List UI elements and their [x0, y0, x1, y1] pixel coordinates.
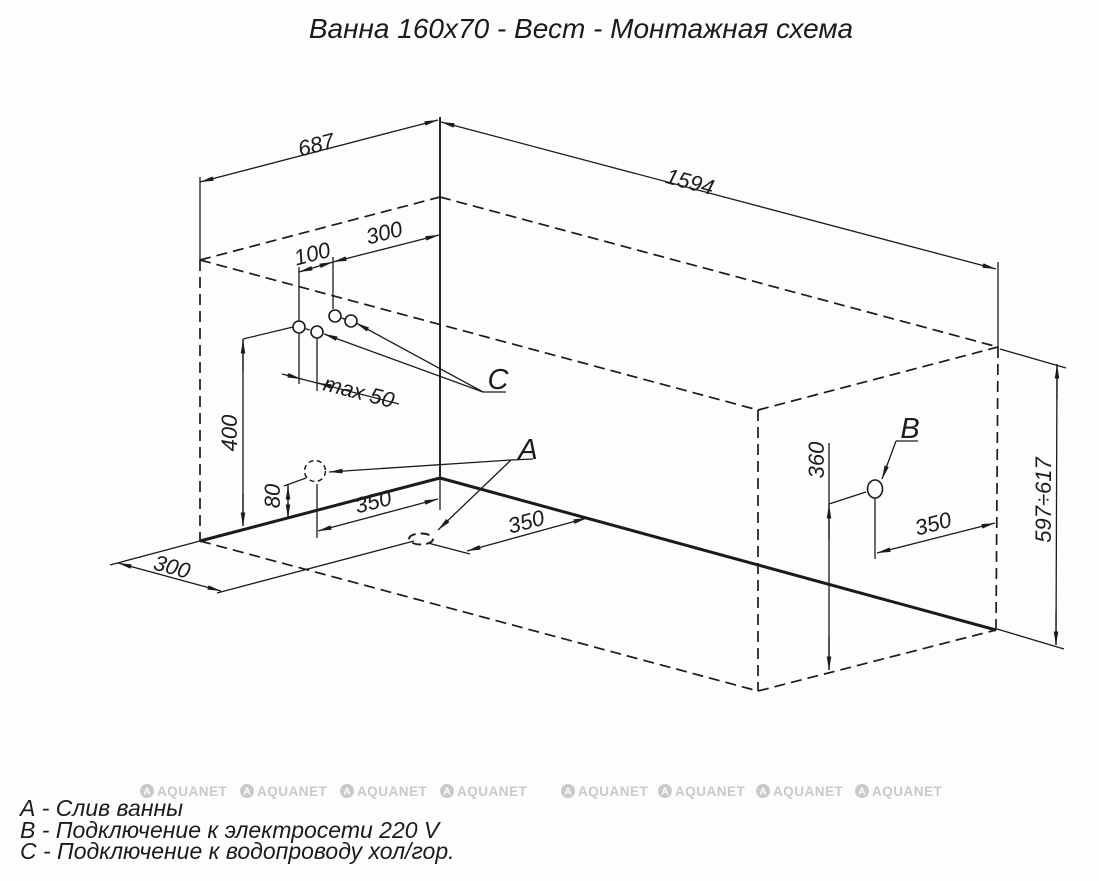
dim-floor-drain-length-300: 300 — [118, 550, 221, 591]
aquanet-logo-icon: A — [661, 787, 668, 798]
aquanet-logo-icon: A — [858, 787, 865, 798]
installation-diagram: AAQUANET AAQUANET AAQUANET AAQUANET AAQU… — [0, 0, 1099, 881]
water-hole — [329, 310, 341, 322]
dim-b-height-360: 360 — [804, 441, 829, 670]
installation-diagram-page: AAQUANET AAQUANET AAQUANET AAQUANET AAQU… — [0, 0, 1099, 881]
dim-floor-drain-width-350: 350 — [467, 505, 587, 551]
svg-text:AQUANET: AQUANET — [578, 784, 649, 799]
aquanet-watermark: AAQUANET — [340, 784, 428, 799]
water-hole — [345, 315, 357, 327]
aquanet-watermark: AAQUANET — [756, 784, 844, 799]
dim-label-687: 687 — [295, 128, 338, 162]
aquanet-logo-icon: A — [243, 787, 250, 798]
dim-c-connections: 100 300 — [291, 216, 439, 272]
aquanet-watermark: AAQUANET — [658, 784, 746, 799]
dim-label-400: 400 — [217, 414, 242, 451]
watermark-row: AAQUANET AAQUANET AAQUANET AAQUANET AAQU… — [140, 784, 943, 799]
dim-label-360: 360 — [804, 441, 829, 478]
dim-wall-drain-offset-350: 350 — [318, 485, 438, 531]
aquanet-watermark: AAQUANET — [561, 784, 649, 799]
dim-label-350-wall: 350 — [352, 485, 394, 518]
callout-b: B — [882, 413, 920, 479]
svg-text:AQUANET: AQUANET — [357, 784, 428, 799]
svg-text:AQUANET: AQUANET — [457, 784, 528, 799]
aquanet-logo-icon: A — [564, 787, 571, 798]
dim-label-max-50: max 50 — [321, 371, 398, 413]
callout-letter-b: B — [900, 413, 919, 445]
bathtub-box-hidden-edges — [200, 197, 998, 691]
page-title: Ванна 160x70 - Вест - Монтажная схема — [309, 13, 853, 44]
svg-text:AQUANET: AQUANET — [257, 784, 328, 799]
wall-drain-hole-a — [305, 461, 326, 482]
dim-wall-drain-height-80: 80 — [260, 483, 288, 518]
dim-label-300-top: 300 — [363, 216, 406, 250]
svg-text:AQUANET: AQUANET — [872, 784, 943, 799]
aquanet-logo-icon: A — [443, 787, 450, 798]
aquanet-watermark: AAQUANET — [855, 784, 943, 799]
dim-top-width-687: 687 — [200, 120, 438, 182]
bathtub-box-visible-edges — [200, 117, 996, 630]
callout-letter-c: C — [488, 364, 510, 396]
extension-lines — [110, 177, 1066, 649]
water-hole — [311, 326, 323, 338]
dim-label-597-617: 597÷617 — [1031, 456, 1056, 542]
aquanet-watermark: AAQUANET — [240, 784, 328, 799]
dim-b-offset-350: 350 — [877, 507, 995, 553]
dim-label-300-bottom: 300 — [151, 550, 194, 584]
legend: А - Слив ванны В - Подключение к электро… — [18, 795, 455, 864]
legend-item-c: С - Подключение к водопроводу хол/гор. — [20, 838, 455, 864]
svg-text:AQUANET: AQUANET — [773, 784, 844, 799]
aquanet-watermark: AAQUANET — [440, 784, 528, 799]
dim-label-100: 100 — [291, 237, 334, 271]
dim-overall-height-597-617: 597÷617 — [1031, 364, 1057, 645]
svg-text:AQUANET: AQUANET — [675, 784, 746, 799]
electric-connection-b — [868, 480, 883, 498]
aquanet-logo-icon: A — [759, 787, 766, 798]
callout-letter-a: A — [516, 434, 537, 466]
dim-label-80: 80 — [260, 483, 285, 508]
dim-top-length-1594: 1594 — [441, 122, 996, 269]
aquanet-logo-icon: A — [343, 787, 350, 798]
water-hole — [293, 321, 305, 333]
dim-label-350-floor: 350 — [505, 505, 548, 539]
dim-label-1594: 1594 — [663, 163, 717, 200]
floor-drain-a — [409, 534, 433, 545]
dim-c-height-400: 400 — [217, 339, 243, 526]
